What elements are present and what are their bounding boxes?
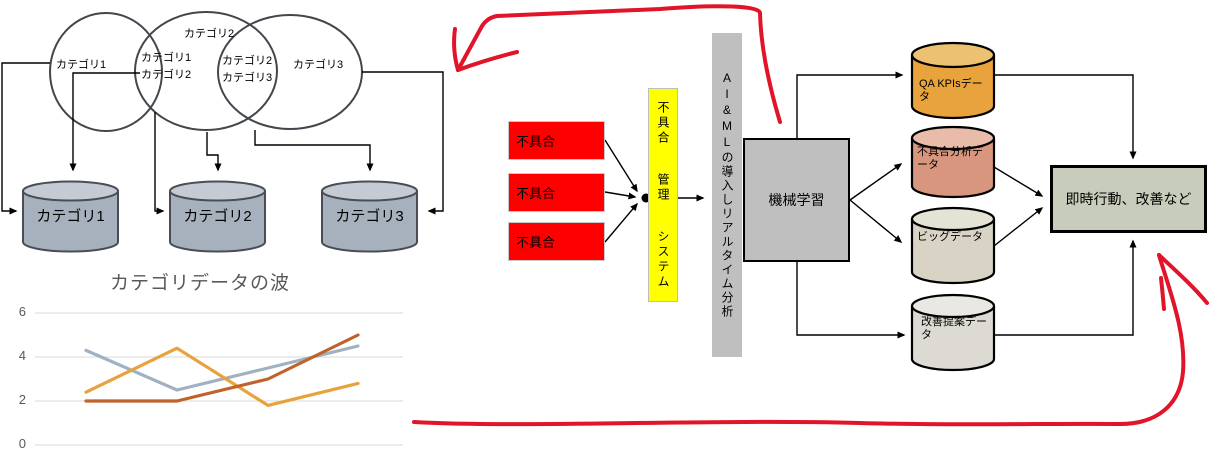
ai-ml-realtime-bar: AI&MLの導入しリアルタイム分析 (712, 33, 742, 357)
venn-label-category1: カテゴリ1 (56, 56, 106, 72)
venn-label-category2: カテゴリ2 (184, 25, 234, 41)
defect-management-system-bar: 不具合 管理 システム (648, 88, 678, 302)
defect-box-3: 不具合 (508, 222, 605, 261)
defect-box-3-label: 不具合 (516, 232, 555, 251)
venn-overlap12-line2: カテゴリ2 (141, 66, 191, 82)
db-label-category2: カテゴリ2 (170, 205, 265, 226)
annotation-arrow-bottom (414, 255, 1183, 424)
action-box: 即時行動、改善など (1050, 165, 1207, 233)
arrow-ml-to-analysis (850, 164, 901, 200)
db-label-category3: カテゴリ3 (322, 205, 417, 226)
machine-learning-box: 機械学習 (743, 138, 850, 262)
machine-learning-label: 機械学習 (769, 190, 825, 210)
arrow-ml-to-bigdata (850, 200, 901, 242)
connector-c2-top (207, 132, 218, 170)
connector-c1-top (73, 73, 140, 170)
venn-label-category3: カテゴリ3 (293, 56, 343, 72)
arrow-ml-to-improve (797, 262, 904, 335)
diagram-canvas: カテゴリ1 カテゴリ2 カテゴリ3 カテゴリ1 カテゴリ2 カテゴリ2 カテゴリ… (0, 0, 1217, 465)
venn-overlap23-line2: カテゴリ3 (222, 69, 272, 85)
cylinder-improvement-label: 改善提案データ (921, 316, 991, 342)
arrow-analysis-to-action (994, 167, 1042, 196)
arrow-defect2 (605, 192, 635, 197)
defect-management-system-label: 不具合 管理 システム (648, 101, 678, 290)
defect-box-2: 不具合 (508, 173, 605, 212)
chart-line-gray (86, 346, 358, 390)
connector-c2-left (155, 112, 163, 211)
cylinder-big-data-label: ビッグデータ (917, 231, 993, 244)
annotation-arrow-bottom-barb-2 (1161, 278, 1164, 309)
defect-box-2-label: 不具合 (516, 183, 555, 202)
cylinder-defect-analysis-label: 不具合分析データ (917, 146, 987, 172)
defect-box-1-label: 不具合 (516, 131, 555, 150)
cylinder-qa-kpis-label: QA KPIsデータ (919, 78, 989, 104)
line-chart-plot (35, 313, 403, 445)
arrow-ml-to-qa (797, 75, 902, 138)
arrow-improve-to-action (994, 241, 1133, 335)
ai-ml-realtime-label: AI&MLの導入しリアルタイム分析 (712, 71, 742, 319)
arrow-defect1 (605, 140, 637, 191)
arrow-bigdata-to-action (994, 208, 1042, 246)
venn-overlap23-line1: カテゴリ2 (222, 52, 272, 68)
arrow-qa-to-action (994, 75, 1133, 158)
action-box-label: 即時行動、改善など (1066, 189, 1192, 209)
cylinder-big-data (912, 208, 994, 283)
connector-c3-top (255, 130, 370, 170)
db-label-category1: カテゴリ1 (23, 205, 118, 226)
chart-title: カテゴリデータの波 (50, 268, 350, 295)
arrow-defect3 (605, 204, 637, 242)
defect-box-1: 不具合 (508, 121, 605, 160)
annotation-arrow-top-barb-1 (454, 29, 458, 70)
venn-overlap12-line1: カテゴリ1 (141, 49, 191, 65)
